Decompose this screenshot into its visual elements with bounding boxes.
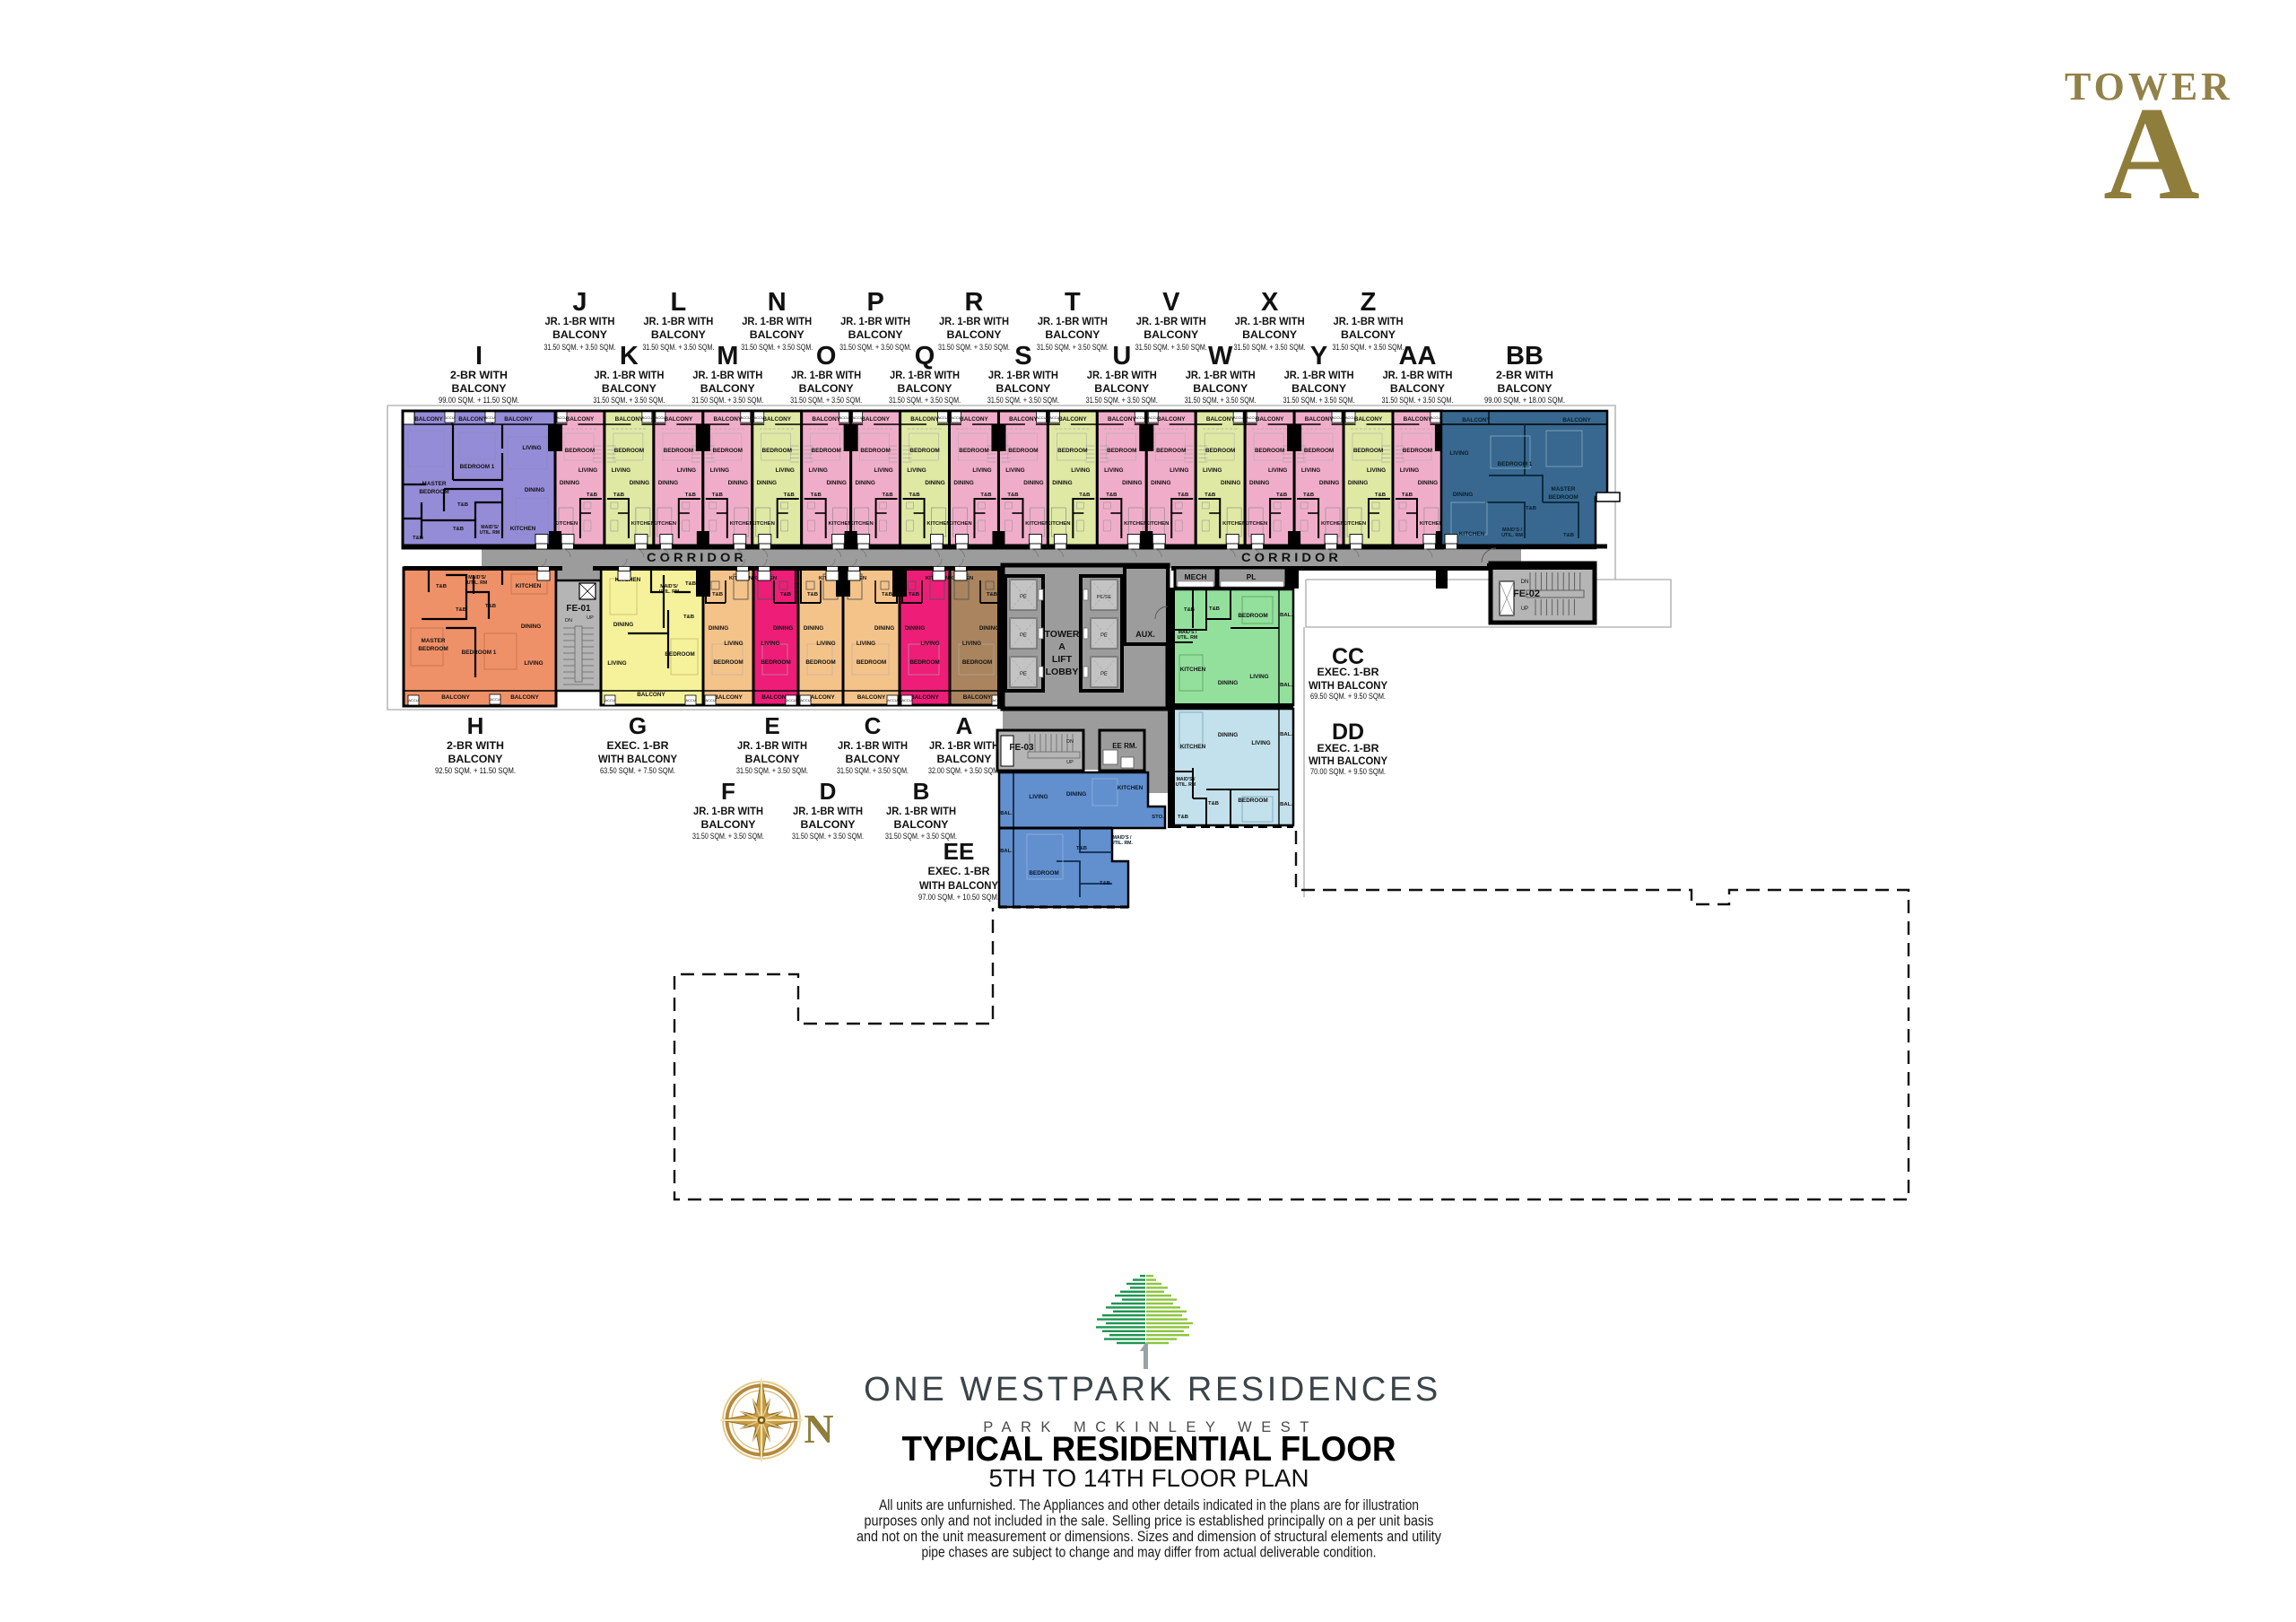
svg-text:31.50 SQM. + 3.50 SQM.: 31.50 SQM. + 3.50 SQM. <box>889 395 961 405</box>
svg-text:BALCONY: BALCONY <box>857 694 886 701</box>
svg-text:LIVING: LIVING <box>1400 467 1419 474</box>
svg-text:BALCONY: BALCONY <box>1390 382 1445 395</box>
svg-text:DINING: DINING <box>855 480 874 486</box>
svg-text:T&B: T&B <box>883 493 893 498</box>
svg-text:99.00 SQM. + 11.50 SQM.: 99.00 SQM. + 11.50 SQM. <box>439 395 519 405</box>
svg-text:BALCONY: BALCONY <box>812 416 840 423</box>
svg-text:2-BR WITH: 2-BR WITH <box>447 739 504 752</box>
svg-text:BEDROOM: BEDROOM <box>805 659 835 666</box>
svg-text:UTIL. RM: UTIL. RM <box>1178 635 1197 641</box>
svg-text:JR. 1-BR WITH: JR. 1-BR WITH <box>643 315 713 327</box>
svg-text:T&B: T&B <box>456 607 466 613</box>
svg-text:BEDROOM 1: BEDROOM 1 <box>460 464 495 470</box>
svg-text:JR. 1-BR WITH: JR. 1-BR WITH <box>840 315 910 327</box>
svg-text:BALCONY: BALCONY <box>448 753 503 765</box>
svg-text:BEDROOM: BEDROOM <box>1156 448 1186 454</box>
svg-text:BEDROOM: BEDROOM <box>419 489 448 495</box>
svg-text:T&B: T&B <box>882 592 892 597</box>
svg-text:JR. 1-BR WITH: JR. 1-BR WITH <box>1382 369 1452 381</box>
svg-text:KITCHEN: KITCHEN <box>926 521 950 527</box>
svg-text:LIVING: LIVING <box>524 660 543 667</box>
svg-text:BALCONY: BALCONY <box>801 818 856 831</box>
svg-text:T&B: T&B <box>1276 493 1287 498</box>
svg-text:31.50 SQM. + 3.50 SQM.: 31.50 SQM. + 3.50 SQM. <box>790 395 862 405</box>
svg-text:UTIL. RM: UTIL. RM <box>480 530 500 536</box>
svg-text:DINING: DINING <box>1066 791 1086 798</box>
svg-text:DINING: DINING <box>1023 480 1043 486</box>
svg-text:T&B: T&B <box>685 493 696 498</box>
svg-text:2-BR WITH: 2-BR WITH <box>450 369 508 381</box>
svg-text:ACCU: ACCU <box>786 698 796 702</box>
svg-text:DINING: DINING <box>979 625 999 632</box>
svg-text:EXEC. 1-BR: EXEC. 1-BR <box>607 739 669 752</box>
svg-text:WITH BALCONY: WITH BALCONY <box>919 879 998 892</box>
svg-text:BALCONY: BALCONY <box>910 416 939 423</box>
svg-text:C O R R I D O R: C O R R I D O R <box>1241 551 1338 564</box>
svg-text:KITCHEN: KITCHEN <box>730 521 753 527</box>
svg-text:ACCU: ACCU <box>408 698 418 702</box>
svg-text:T&B: T&B <box>1100 881 1110 886</box>
svg-text:BEDROOM: BEDROOM <box>1238 613 1267 619</box>
svg-text:JR. 1-BR WITH: JR. 1-BR WITH <box>1136 315 1206 327</box>
svg-text:DINING: DINING <box>1221 480 1240 486</box>
svg-text:DINING: DINING <box>925 480 944 486</box>
svg-text:BEDROOM: BEDROOM <box>1403 448 1432 454</box>
svg-text:BALCONY: BALCONY <box>1462 417 1491 423</box>
svg-text:31.50 SQM. + 3.50 SQM.: 31.50 SQM. + 3.50 SQM. <box>741 342 813 352</box>
svg-text:BALCONY: BALCONY <box>1058 416 1087 423</box>
svg-text:UTIL. RM: UTIL. RM <box>1176 782 1196 788</box>
svg-text:T&B: T&B <box>436 584 447 589</box>
svg-text:BEDROOM: BEDROOM <box>1304 448 1334 454</box>
svg-text:DINING: DINING <box>1151 480 1170 486</box>
svg-text:ACCU: ACCU <box>937 415 947 420</box>
svg-text:JR. 1-BR WITH: JR. 1-BR WITH <box>890 369 960 381</box>
svg-text:BALCONY: BALCONY <box>701 818 756 831</box>
svg-text:A: A <box>2103 80 2200 228</box>
svg-text:BALCONY: BALCONY <box>1562 417 1591 423</box>
svg-text:T&B: T&B <box>685 581 696 587</box>
svg-text:BALCONY: BALCONY <box>894 818 949 831</box>
svg-text:MASTER: MASTER <box>1552 486 1576 493</box>
svg-text:EXEC. 1-BR: EXEC. 1-BR <box>1318 666 1379 678</box>
svg-text:T&B: T&B <box>1178 815 1188 820</box>
svg-text:BEDROOM: BEDROOM <box>857 659 886 666</box>
svg-text:EE RM.: EE RM. <box>1112 742 1137 750</box>
svg-text:JR. 1-BR WITH: JR. 1-BR WITH <box>1284 369 1354 381</box>
svg-text:T&B: T&B <box>453 527 464 532</box>
svg-text:ACCU: ACCU <box>800 698 810 702</box>
svg-text:KITCHEN: KITCHEN <box>510 526 536 532</box>
svg-text:PL: PL <box>1247 572 1257 581</box>
svg-text:W: W <box>1208 342 1233 371</box>
svg-text:LIVING: LIVING <box>710 467 729 474</box>
svg-text:T&B: T&B <box>909 493 920 498</box>
svg-text:T&B: T&B <box>1184 607 1195 613</box>
svg-text:ACCU: ACCU <box>604 698 614 702</box>
svg-text:DINING: DINING <box>905 625 925 632</box>
svg-text:BAL.: BAL. <box>1000 811 1013 816</box>
svg-text:DINING: DINING <box>613 622 633 628</box>
svg-text:DINING: DINING <box>757 480 777 486</box>
svg-text:G: G <box>629 712 647 739</box>
svg-text:BEDROOM: BEDROOM <box>811 448 840 454</box>
svg-text:TYPICAL RESIDENTIAL FLOOR: TYPICAL RESIDENTIAL FLOOR <box>902 1430 1396 1469</box>
svg-text:BALCONY: BALCONY <box>996 382 1050 395</box>
svg-text:JR. 1-BR WITH: JR. 1-BR WITH <box>1038 315 1108 327</box>
svg-text:BAL.: BAL. <box>1280 683 1292 688</box>
svg-text:BEDROOM: BEDROOM <box>761 659 790 666</box>
svg-text:LIVING: LIVING <box>920 641 939 647</box>
svg-text:31.50 SQM. + 3.50 SQM.: 31.50 SQM. + 3.50 SQM. <box>1086 395 1158 405</box>
svg-text:31.50 SQM. + 3.50 SQM.: 31.50 SQM. + 3.50 SQM. <box>1135 342 1207 352</box>
svg-text:KITCHEN: KITCHEN <box>1180 744 1206 750</box>
svg-text:KITCHEN: KITCHEN <box>554 521 578 527</box>
svg-text:BALCONY: BALCONY <box>963 694 992 701</box>
svg-text:BALCONY: BALCONY <box>615 416 644 423</box>
svg-text:31.50 SQM. + 3.50 SQM.: 31.50 SQM. + 3.50 SQM. <box>1185 395 1257 405</box>
svg-text:ACCU: ACCU <box>1036 415 1046 420</box>
svg-text:LIVING: LIVING <box>612 467 631 474</box>
svg-text:KITCHEN: KITCHEN <box>1118 785 1144 791</box>
svg-text:31.50 SQM. + 3.50 SQM.: 31.50 SQM. + 3.50 SQM. <box>792 831 864 841</box>
svg-text:LIVING: LIVING <box>1249 674 1268 680</box>
svg-text:KITCHEN: KITCHEN <box>1025 521 1048 527</box>
svg-text:BALCONY: BALCONY <box>910 694 939 701</box>
svg-text:BAL.: BAL. <box>1000 849 1013 854</box>
svg-text:BALCONY: BALCONY <box>750 328 804 341</box>
svg-text:DINING: DINING <box>1218 732 1238 738</box>
svg-text:ONE WESTPARK RESIDENCES: ONE WESTPARK RESIDENCES <box>864 1371 1441 1408</box>
svg-text:KITCHEN: KITCHEN <box>1459 531 1485 537</box>
svg-text:ACCU: ACCU <box>741 415 751 420</box>
svg-text:KITCHEN: KITCHEN <box>948 521 971 527</box>
svg-text:A: A <box>1058 641 1065 652</box>
svg-text:DN: DN <box>1521 580 1529 585</box>
svg-text:BALCONY: BALCONY <box>1157 416 1186 423</box>
svg-text:BALCONY: BALCONY <box>1498 382 1552 395</box>
svg-text:DINING: DINING <box>709 625 728 632</box>
svg-text:BB: BB <box>1506 342 1544 371</box>
svg-text:T&B: T&B <box>780 592 791 597</box>
svg-text:ACCU: ACCU <box>444 415 454 420</box>
svg-text:31.50 SQM. + 3.50 SQM.: 31.50 SQM. + 3.50 SQM. <box>938 342 1010 352</box>
svg-text:LIVING: LIVING <box>761 641 779 647</box>
svg-text:BEDROOM: BEDROOM <box>762 448 792 454</box>
svg-text:KITCHEN: KITCHEN <box>1343 521 1366 527</box>
svg-text:WITH BALCONY: WITH BALCONY <box>598 753 677 765</box>
svg-text:BALCONY: BALCONY <box>1009 416 1038 423</box>
svg-text:T&B: T&B <box>1007 493 1018 498</box>
svg-text:B: B <box>913 778 930 805</box>
svg-text:ACCU: ACCU <box>685 698 695 702</box>
svg-text:BALCONY: BALCONY <box>665 416 693 423</box>
svg-text:JR. 1-BR WITH: JR. 1-BR WITH <box>1334 315 1404 327</box>
svg-text:BEDROOM: BEDROOM <box>1353 448 1383 454</box>
svg-text:T&B: T&B <box>1209 606 1220 612</box>
svg-text:A: A <box>956 712 973 739</box>
svg-text:BALCONY: BALCONY <box>651 328 706 341</box>
svg-text:BALCONY: BALCONY <box>714 694 743 701</box>
svg-text:31.50 SQM. + 3.50 SQM.: 31.50 SQM. + 3.50 SQM. <box>691 395 763 405</box>
svg-text:BALCONY: BALCONY <box>799 382 854 395</box>
svg-text:BALCONY: BALCONY <box>552 328 607 341</box>
svg-text:UTIL. RM: UTIL. RM <box>467 580 487 586</box>
svg-text:70.00 SQM. + 9.50 SQM.: 70.00 SQM. + 9.50 SQM. <box>1310 766 1386 776</box>
svg-text:and not on the unit measuremen: and not on the unit measurement or dimen… <box>857 1528 1441 1545</box>
svg-text:JR. 1-BR WITH: JR. 1-BR WITH <box>791 369 861 381</box>
svg-text:N: N <box>804 1406 833 1452</box>
svg-text:BEDROOM: BEDROOM <box>614 448 644 454</box>
svg-text:U: U <box>1112 342 1131 371</box>
svg-text:T&B: T&B <box>1106 493 1117 498</box>
svg-text:BALCONY: BALCONY <box>602 382 657 395</box>
svg-text:KITCHEN: KITCHEN <box>516 583 542 589</box>
svg-text:KITCHEN: KITCHEN <box>1222 521 1246 527</box>
svg-text:KITCHEN: KITCHEN <box>1420 521 1443 527</box>
svg-text:JR. 1-BR WITH: JR. 1-BR WITH <box>737 739 807 752</box>
svg-text:D: D <box>820 778 837 805</box>
svg-text:JR. 1-BR WITH: JR. 1-BR WITH <box>693 805 763 817</box>
svg-text:T&B: T&B <box>909 592 919 597</box>
svg-text:KITCHEN: KITCHEN <box>1145 521 1169 527</box>
svg-text:BALCONY: BALCONY <box>960 416 988 423</box>
svg-text:DINING: DINING <box>630 480 649 486</box>
svg-text:LIVING: LIVING <box>677 467 696 474</box>
svg-text:DINING: DINING <box>773 625 793 632</box>
svg-text:LIVING: LIVING <box>1268 467 1287 474</box>
svg-text:LIVING: LIVING <box>907 467 926 474</box>
svg-text:UTIL. RM: UTIL. RM <box>659 589 679 595</box>
svg-text:FE-02: FE-02 <box>1513 589 1540 599</box>
svg-text:ACCU: ACCU <box>839 415 848 420</box>
svg-text:DINING: DINING <box>1348 480 1368 486</box>
svg-text:31.50 SQM. + 3.50 SQM.: 31.50 SQM. + 3.50 SQM. <box>1333 342 1405 352</box>
svg-text:DN: DN <box>1066 739 1074 745</box>
svg-text:DINING: DINING <box>953 480 973 486</box>
svg-text:BALCONY: BALCONY <box>700 382 755 395</box>
svg-text:BALCONY: BALCONY <box>1256 416 1284 423</box>
svg-text:T&B: T&B <box>1526 506 1536 511</box>
svg-text:BALCONY: BALCONY <box>745 753 800 765</box>
svg-text:97.00 SQM. + 10.50 SQM.: 97.00 SQM. + 10.50 SQM. <box>918 892 999 902</box>
svg-text:BALCONY: BALCONY <box>1045 328 1100 341</box>
svg-text:JR. 1-BR WITH: JR. 1-BR WITH <box>594 369 664 381</box>
svg-text:C: C <box>865 712 882 739</box>
svg-text:31.50 SQM. + 3.50 SQM.: 31.50 SQM. + 3.50 SQM. <box>1283 395 1355 405</box>
svg-text:LIVING: LIVING <box>578 467 597 474</box>
svg-text:31.50 SQM. + 3.50 SQM.: 31.50 SQM. + 3.50 SQM. <box>736 765 808 775</box>
svg-text:DINING: DINING <box>1418 480 1438 486</box>
svg-text:ACCU: ACCU <box>901 698 911 702</box>
svg-text:All units are unfurnished. The: All units are unfurnished. The Appliance… <box>879 1496 1419 1513</box>
svg-text:31.50 SQM. + 3.50 SQM.: 31.50 SQM. + 3.50 SQM. <box>544 342 615 352</box>
svg-text:ACCU: ACCU <box>1431 415 1440 420</box>
svg-text:DINING: DINING <box>874 625 894 632</box>
svg-text:ACCU: ACCU <box>1233 415 1243 420</box>
svg-text:BALCONY: BALCONY <box>846 753 900 765</box>
svg-text:KITCHEN: KITCHEN <box>631 521 655 527</box>
svg-text:LIVING: LIVING <box>1071 467 1090 474</box>
svg-text:BEDROOM: BEDROOM <box>1205 448 1235 454</box>
svg-text:DINING: DINING <box>560 480 579 486</box>
svg-text:N: N <box>768 288 787 317</box>
svg-text:T&B: T&B <box>1375 493 1386 498</box>
svg-text:BALCONY: BALCONY <box>848 328 903 341</box>
svg-text:JR. 1-BR WITH: JR. 1-BR WITH <box>1087 369 1157 381</box>
svg-text:I: I <box>475 342 483 371</box>
svg-text:F: F <box>721 778 735 805</box>
svg-text:BALCONY: BALCONY <box>1305 416 1334 423</box>
svg-text:DINING: DINING <box>1319 480 1339 486</box>
svg-text:KITCHEN: KITCHEN <box>653 521 676 527</box>
svg-text:UP: UP <box>587 615 594 621</box>
svg-text:BALCONY: BALCONY <box>458 416 487 423</box>
svg-text:M: M <box>717 342 738 371</box>
svg-text:T&B: T&B <box>457 502 468 508</box>
svg-text:LIVING: LIVING <box>724 641 743 647</box>
svg-text:KITCHEN: KITCHEN <box>752 521 775 527</box>
svg-text:AUX.: AUX. <box>1135 630 1155 639</box>
svg-text:JR. 1-BR WITH: JR. 1-BR WITH <box>1186 369 1256 381</box>
svg-text:JR. 1-BR WITH: JR. 1-BR WITH <box>838 739 908 752</box>
svg-text:T&B: T&B <box>1076 846 1087 851</box>
svg-text:BEDROOM 1: BEDROOM 1 <box>1498 461 1533 467</box>
svg-text:R: R <box>965 288 984 317</box>
svg-text:BALCONY: BALCONY <box>713 416 742 423</box>
svg-text:T&B: T&B <box>683 615 694 620</box>
svg-text:BALCONY: BALCONY <box>762 416 791 423</box>
svg-text:UP: UP <box>1521 606 1528 612</box>
svg-text:JR. 1-BR WITH: JR. 1-BR WITH <box>886 805 956 817</box>
svg-text:LOBBY: LOBBY <box>1046 667 1079 677</box>
svg-text:KITCHEN: KITCHEN <box>1047 521 1070 527</box>
svg-text:BEDROOM: BEDROOM <box>418 646 448 652</box>
svg-text:BAL.: BAL. <box>1280 802 1292 807</box>
svg-text:L: L <box>670 288 686 317</box>
svg-text:MECH: MECH <box>1184 572 1206 581</box>
svg-text:LIVING: LIVING <box>816 641 835 647</box>
svg-text:EXEC. 1-BR: EXEC. 1-BR <box>1318 742 1379 754</box>
svg-text:BEDROOM: BEDROOM <box>1548 494 1578 501</box>
svg-text:KITCHEN: KITCHEN <box>850 521 874 527</box>
svg-text:BALCONY: BALCONY <box>1291 382 1346 395</box>
svg-text:DINING: DINING <box>1453 492 1473 498</box>
svg-text:KITCHEN: KITCHEN <box>1321 521 1344 527</box>
svg-text:JR. 1-BR WITH: JR. 1-BR WITH <box>742 315 812 327</box>
svg-text:UTIL. RM.: UTIL. RM. <box>1111 841 1133 846</box>
svg-text:BEDROOM: BEDROOM <box>713 659 743 666</box>
svg-text:LIVING: LIVING <box>972 467 991 474</box>
svg-text:JR. 1-BR WITH: JR. 1-BR WITH <box>1235 315 1305 327</box>
svg-text:BEDROOM: BEDROOM <box>664 448 693 454</box>
svg-text:T&B: T&B <box>1563 533 1574 538</box>
svg-text:LIVING: LIVING <box>1449 450 1468 457</box>
svg-text:ACCU: ACCU <box>887 698 897 702</box>
svg-text:LIVING: LIVING <box>1301 467 1320 474</box>
svg-text:31.50 SQM. + 3.50 SQM.: 31.50 SQM. + 3.50 SQM. <box>642 342 714 352</box>
svg-text:DINING: DINING <box>525 487 544 493</box>
svg-text:C O R R I D O R: C O R R I D O R <box>647 551 744 564</box>
svg-text:DINING: DINING <box>1249 480 1269 486</box>
svg-text:LIVING: LIVING <box>1029 794 1048 800</box>
svg-text:LIVING: LIVING <box>857 641 875 647</box>
svg-text:BALCONY: BALCONY <box>414 416 443 423</box>
svg-text:31.50 SQM. + 3.50 SQM.: 31.50 SQM. + 3.50 SQM. <box>837 765 909 775</box>
svg-text:31.50 SQM. + 3.50 SQM.: 31.50 SQM. + 3.50 SQM. <box>1381 395 1453 405</box>
svg-text:LIVING: LIVING <box>874 467 892 474</box>
svg-text:T&B: T&B <box>784 493 795 498</box>
svg-text:WITH BALCONY: WITH BALCONY <box>1309 754 1387 767</box>
svg-text:V: V <box>1162 288 1180 317</box>
svg-text:BALCONY: BALCONY <box>452 382 507 395</box>
svg-text:BAL.: BAL. <box>1280 732 1292 737</box>
svg-text:T&B: T&B <box>1178 493 1188 498</box>
svg-text:31.50 SQM. + 3.50 SQM.: 31.50 SQM. + 3.50 SQM. <box>1234 342 1306 352</box>
svg-text:BALCONY: BALCONY <box>937 753 992 765</box>
svg-text:31.50 SQM. + 3.50 SQM.: 31.50 SQM. + 3.50 SQM. <box>593 395 665 405</box>
svg-text:BALCONY: BALCONY <box>1193 382 1248 395</box>
svg-text:69.50 SQM. + 9.50 SQM.: 69.50 SQM. + 9.50 SQM. <box>1310 691 1386 701</box>
svg-text:STO.: STO. <box>1152 815 1164 820</box>
svg-text:BALCONY: BALCONY <box>1354 416 1383 423</box>
svg-text:92.50 SQM. + 11.50 SQM.: 92.50 SQM. + 11.50 SQM. <box>435 765 516 775</box>
svg-text:P: P <box>866 288 883 317</box>
svg-text:DINING: DINING <box>804 625 823 632</box>
svg-text:BEDROOM: BEDROOM <box>713 448 743 454</box>
svg-text:WITH BALCONY: WITH BALCONY <box>1309 679 1387 692</box>
svg-text:BALCONY: BALCONY <box>898 382 952 395</box>
svg-text:AA: AA <box>1399 342 1437 371</box>
svg-text:BEDROOM: BEDROOM <box>959 448 988 454</box>
svg-text:31.50 SQM. + 3.50 SQM.: 31.50 SQM. + 3.50 SQM. <box>692 831 764 841</box>
svg-text:LIVING: LIVING <box>1251 740 1270 746</box>
svg-text:BEDROOM: BEDROOM <box>860 448 890 454</box>
svg-text:MASTER: MASTER <box>422 638 446 644</box>
svg-text:31.50 SQM. + 3.50 SQM.: 31.50 SQM. + 3.50 SQM. <box>1037 342 1109 352</box>
svg-text:UP: UP <box>1066 760 1074 765</box>
svg-text:LIVING: LIVING <box>607 660 626 667</box>
svg-text:ACCU: ACCU <box>490 697 500 702</box>
svg-text:T&B: T&B <box>1208 801 1219 807</box>
svg-text:JR. 1-BR WITH: JR. 1-BR WITH <box>988 369 1058 381</box>
svg-text:FE-03: FE-03 <box>1009 743 1034 753</box>
svg-text:BALCONY: BALCONY <box>441 694 470 701</box>
svg-text:pipe chases are subject to cha: pipe chases are subject to change and ma… <box>922 1544 1377 1561</box>
svg-text:T&B: T&B <box>811 493 822 498</box>
svg-text:ACCU: ACCU <box>1135 415 1144 420</box>
svg-text:BALCONY: BALCONY <box>1404 416 1432 423</box>
svg-text:LIVING: LIVING <box>962 641 981 647</box>
svg-text:S: S <box>1014 342 1031 371</box>
svg-text:T&B: T&B <box>1205 493 1215 498</box>
svg-text:DD: DD <box>1332 719 1364 745</box>
svg-text:BAL.: BAL. <box>1280 613 1292 618</box>
svg-text:2-BR WITH: 2-BR WITH <box>1496 369 1553 381</box>
svg-text:E: E <box>764 712 779 739</box>
svg-text:BALCONY: BALCONY <box>1206 416 1235 423</box>
svg-text:BALCONY: BALCONY <box>637 692 665 698</box>
svg-text:BALCONY: BALCONY <box>946 328 1001 341</box>
svg-text:BEDROOM 1: BEDROOM 1 <box>462 650 497 656</box>
svg-text:LIVING: LIVING <box>776 467 795 474</box>
svg-text:FE-01: FE-01 <box>566 604 591 614</box>
svg-text:T&B: T&B <box>712 493 723 498</box>
svg-text:LIVING: LIVING <box>522 445 541 451</box>
svg-text:DINING: DINING <box>826 480 846 486</box>
svg-text:JR. 1-BR WITH: JR. 1-BR WITH <box>929 739 999 752</box>
svg-text:32.00 SQM. + 3.50 SQM.: 32.00 SQM. + 3.50 SQM. <box>928 765 1000 775</box>
